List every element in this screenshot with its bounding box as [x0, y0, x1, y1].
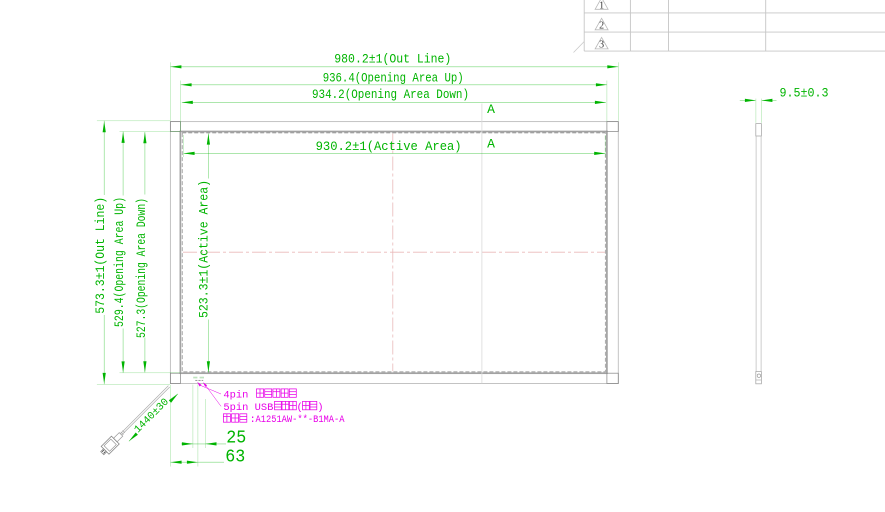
svg-text:936.4(Opening Area Up): 936.4(Opening Area Up) — [323, 71, 464, 85]
svg-text:5pin USB: 5pin USB — [223, 402, 273, 414]
svg-text:573.3±1(Out Line): 573.3±1(Out Line) — [94, 197, 108, 314]
svg-text:4pin: 4pin — [223, 389, 248, 401]
svg-text:934.2(Opening Area Down): 934.2(Opening Area Down) — [312, 88, 469, 102]
svg-text:A: A — [487, 137, 495, 152]
svg-text:(: ( — [297, 402, 303, 414]
svg-text:3: 3 — [599, 40, 604, 51]
svg-text:1: 1 — [599, 0, 604, 11]
svg-text:980.2±1(Out Line): 980.2±1(Out Line) — [334, 53, 451, 67]
svg-text:523.3±1(Active Area): 523.3±1(Active Area) — [197, 180, 211, 318]
svg-text:): ) — [317, 402, 323, 414]
svg-text:930.2±1(Active Area): 930.2±1(Active Area) — [316, 140, 462, 154]
svg-text:25: 25 — [226, 429, 246, 449]
svg-text:A: A — [487, 102, 495, 117]
svg-text:527.3(Opening Area Down): 527.3(Opening Area Down) — [135, 198, 149, 338]
svg-text:9.5±0.3: 9.5±0.3 — [780, 87, 829, 101]
svg-text:A1251AW-**-B1MA-A: A1251AW-**-B1MA-A — [256, 414, 346, 426]
svg-text:63: 63 — [225, 448, 245, 468]
svg-text:529.4(Opening Area Up): 529.4(Opening Area Up) — [113, 197, 127, 327]
svg-text:2: 2 — [599, 21, 604, 32]
